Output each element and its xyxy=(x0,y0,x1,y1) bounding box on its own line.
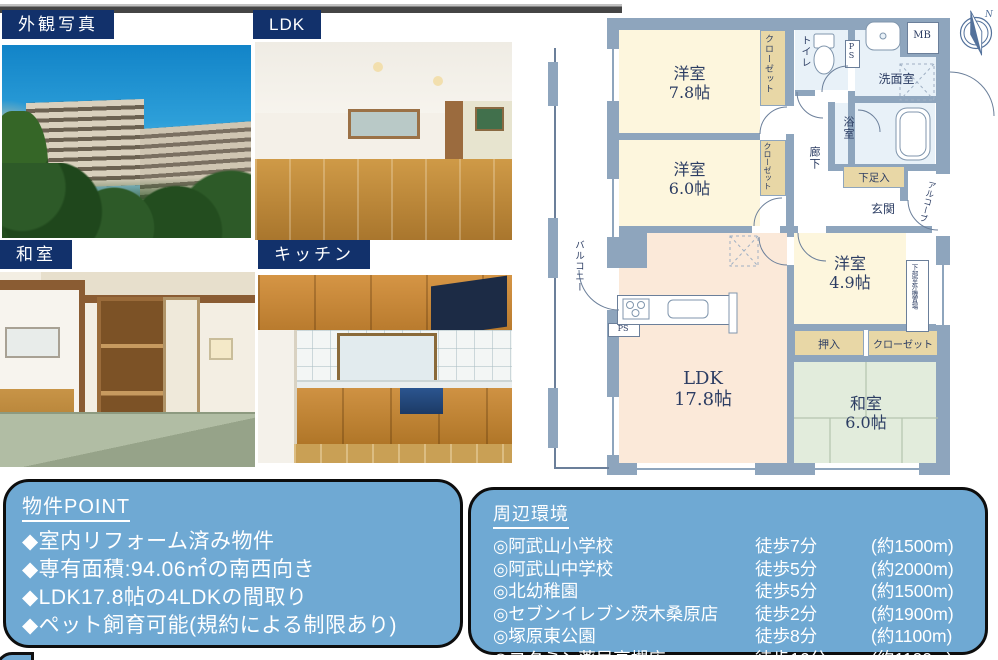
label-oshiire: 押入 xyxy=(794,336,864,352)
room-name: 洋室 xyxy=(619,160,760,179)
place-name: ◎セブンイレブン茨木桑原店 xyxy=(493,603,755,626)
label-bath: 浴室 xyxy=(840,116,856,158)
property-point-item: ◆ペット飼育可能(規約による制限あり) xyxy=(22,612,460,640)
ldk-lights xyxy=(373,62,383,72)
kitchen-wood-floor xyxy=(294,444,512,463)
label-ps-2: PS xyxy=(608,324,638,333)
room-size: 17.8帖 xyxy=(619,389,787,410)
walk-time: 徒歩8分 xyxy=(755,625,871,648)
distance: (約1900m) xyxy=(871,603,985,626)
label-mb: MB xyxy=(907,30,937,41)
property-point-item: ◆専有面積:94.06㎡の南西向き xyxy=(22,556,460,584)
label-hallway: 廊下 xyxy=(806,146,822,184)
distance: (約1500m) xyxy=(871,535,985,558)
label-closet-2: クローゼット xyxy=(762,142,773,196)
walk-time: 徒歩5分 xyxy=(755,580,871,603)
photo-label-exterior: 外観写真 xyxy=(2,10,114,39)
kitchen-pass-window xyxy=(337,333,437,382)
room-name: 和室 xyxy=(794,394,938,413)
washitsu-wall-lamp xyxy=(209,338,233,360)
floor-plan: N 洋室 7.8帖 洋室 6.0帖 洋室 4.9帖 LDK 17.8帖 和室 6… xyxy=(548,8,998,480)
surroundings-box: 周辺環境 ◎阿武山小学校 徒歩7分 (約1500m) ◎阿武山中学校 徒歩5分 … xyxy=(468,487,988,655)
next-section-corner xyxy=(0,652,34,660)
north-label: N xyxy=(984,10,994,20)
place-name: ◎塚原東公園 xyxy=(493,625,755,648)
room-size: 7.8帖 xyxy=(619,83,760,102)
photo-kitchen xyxy=(258,275,512,463)
walk-time: 徒歩16分 xyxy=(755,648,871,660)
ldk-counter-window xyxy=(348,109,421,139)
photo-exterior xyxy=(2,45,251,238)
label-washitsu: 和室 6.0帖 xyxy=(794,394,938,432)
property-point-item: ◆LDK17.8帖の4LDKの間取り xyxy=(22,584,460,612)
room-size: 6.0帖 xyxy=(794,413,938,432)
property-point-title: 物件POINT xyxy=(22,490,130,522)
label-entrance: 玄関 xyxy=(853,200,913,217)
place-name: ◎阿武山小学校 xyxy=(493,535,755,558)
label-toilet: トイレ xyxy=(797,35,812,89)
place-name: ◎北幼稚園 xyxy=(493,580,755,603)
place-name: ◎阿武山中学校 xyxy=(493,558,755,581)
room-size: 6.0帖 xyxy=(619,179,760,198)
label-ps: PS xyxy=(847,42,856,66)
photo-ldk xyxy=(255,42,512,240)
surroundings-table: ◎阿武山小学校 徒歩7分 (約1500m) ◎阿武山中学校 徒歩5分 (約200… xyxy=(493,535,985,660)
distance: (約1500m) xyxy=(871,580,985,603)
compass-north-icon: N xyxy=(961,9,995,57)
distance: (約1100m) xyxy=(871,648,985,660)
place-name: ◎コクミン薬局高槻店 xyxy=(493,648,755,660)
kitchen-side-wall xyxy=(258,330,297,463)
walk-time: 徒歩5分 xyxy=(755,558,871,581)
washitsu-far-window xyxy=(5,327,60,358)
label-closet-3: クローゼット xyxy=(868,336,938,351)
label-ldk: LDK 17.8帖 xyxy=(619,368,787,410)
distance: (約1100m) xyxy=(871,625,985,648)
photo-washitsu xyxy=(0,272,255,467)
ldk-tatami-window xyxy=(475,107,505,131)
photo-label-washitsu: 和室 xyxy=(0,240,72,269)
room-size: 4.9帖 xyxy=(794,273,906,292)
kitchen-built-in-appliance xyxy=(400,388,443,414)
label-closet-1: クローゼット xyxy=(762,34,775,104)
label-washroom: 洗面室 xyxy=(855,70,938,87)
label-shoebox: 下足入 xyxy=(843,170,905,185)
property-point-box: 物件POINT ◆室内リフォーム済み物件 ◆専有面積:94.06㎡の南西向き ◆… xyxy=(3,479,463,648)
walk-time: 徒歩2分 xyxy=(755,603,871,626)
label-outdoor-unit: 下部室外機置場 xyxy=(909,264,919,328)
kitchen-range-hood xyxy=(431,276,507,337)
property-point-item: ◆室内リフォーム済み物件 xyxy=(22,528,460,556)
property-flyer: 外観写真 LDK 和室 キッチン xyxy=(0,0,998,660)
label-bedroom-4-9: 洋室 4.9帖 xyxy=(794,254,906,292)
exterior-trees xyxy=(2,163,251,238)
surroundings-title: 周辺環境 xyxy=(493,500,569,529)
distance: (約2000m) xyxy=(871,558,985,581)
washitsu-tatami-floor xyxy=(0,412,255,467)
ldk-wood-floor xyxy=(255,159,512,240)
room-name: 洋室 xyxy=(619,64,760,83)
room-name: 洋室 xyxy=(794,254,906,273)
photo-label-kitchen: キッチン xyxy=(258,240,370,269)
label-balcony: バルコニー xyxy=(571,240,585,306)
room-name: LDK xyxy=(619,368,787,389)
photo-label-ldk: LDK xyxy=(253,10,321,39)
label-bedroom-6-0: 洋室 6.0帖 xyxy=(619,160,760,198)
label-bedroom-7-8: 洋室 7.8帖 xyxy=(619,64,760,102)
walk-time: 徒歩7分 xyxy=(755,535,871,558)
